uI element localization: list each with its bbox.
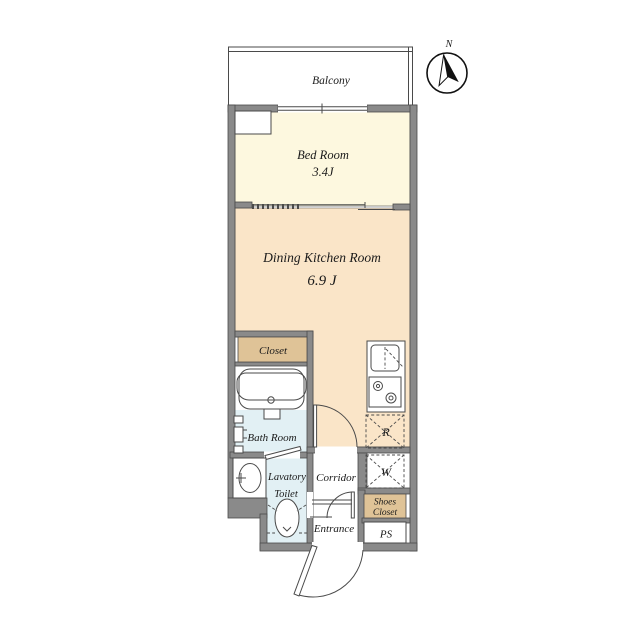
- bedroom-pillar-notch: [235, 111, 271, 134]
- north-compass: N: [427, 39, 467, 93]
- front-door: [294, 546, 363, 598]
- bathtub-faucet-base: [264, 409, 280, 419]
- closet: Closet: [238, 337, 307, 362]
- wall-partition-stub-right: [393, 204, 410, 210]
- compass-needle-icon: [434, 53, 459, 86]
- pipe-space: PS: [364, 522, 406, 543]
- opening-dk-doorway: [315, 447, 357, 454]
- bath-fixture: [234, 446, 243, 453]
- washer-label: W: [381, 465, 392, 479]
- kitchen-counter: [367, 341, 405, 412]
- corridor-door-leaf: [351, 492, 354, 518]
- wall-top-right: [367, 105, 417, 112]
- opening-front-door: [312, 542, 363, 552]
- bath-fixture: [234, 416, 243, 423]
- bedroom-label: Bed Room: [297, 148, 349, 162]
- balcony: Balcony: [228, 47, 413, 105]
- balcony-label: Balcony: [312, 75, 351, 87]
- corridor-label: Corridor: [316, 472, 356, 484]
- wall-washer-bottom: [358, 488, 410, 494]
- wall-partition-stub-left: [235, 202, 252, 208]
- closet-label: Closet: [259, 345, 288, 357]
- floor-plan: Balcony N: [0, 0, 640, 640]
- opening-lavatory-doorway: [307, 492, 313, 518]
- floor-plan-page: Balcony N: [0, 0, 640, 640]
- bathroom-label: Bath Room: [247, 432, 296, 444]
- shoes-closet: Shoes Closet: [364, 494, 406, 518]
- pipe-space-label: PS: [379, 529, 393, 541]
- toilet-label: Toilet: [274, 489, 299, 500]
- stove-outline: [369, 377, 401, 407]
- dining-kitchen-size: 6.9 J: [307, 273, 338, 289]
- dk-door-leaf: [314, 405, 317, 447]
- stove-icon: [369, 377, 401, 407]
- lavatory-label: Lavatory: [267, 472, 306, 483]
- bath-fixture: [234, 427, 243, 442]
- washer-space: W: [366, 455, 404, 488]
- shoes-closet-label-2: Closet: [373, 508, 398, 518]
- entrance-label: Entrance: [313, 523, 354, 535]
- north-label: N: [445, 39, 454, 50]
- front-door-leaf: [294, 546, 317, 597]
- shoes-closet-label-1: Shoes: [374, 498, 396, 508]
- wall-right: [410, 105, 417, 551]
- dining-kitchen-label: Dining Kitchen Room: [262, 250, 381, 265]
- wall-closet-bath: [235, 362, 307, 366]
- wall-closet-top: [235, 331, 313, 337]
- compass-needle-light: [434, 54, 449, 85]
- bedroom-size: 3.4J: [311, 165, 335, 179]
- refrigerator-label: R: [381, 425, 390, 439]
